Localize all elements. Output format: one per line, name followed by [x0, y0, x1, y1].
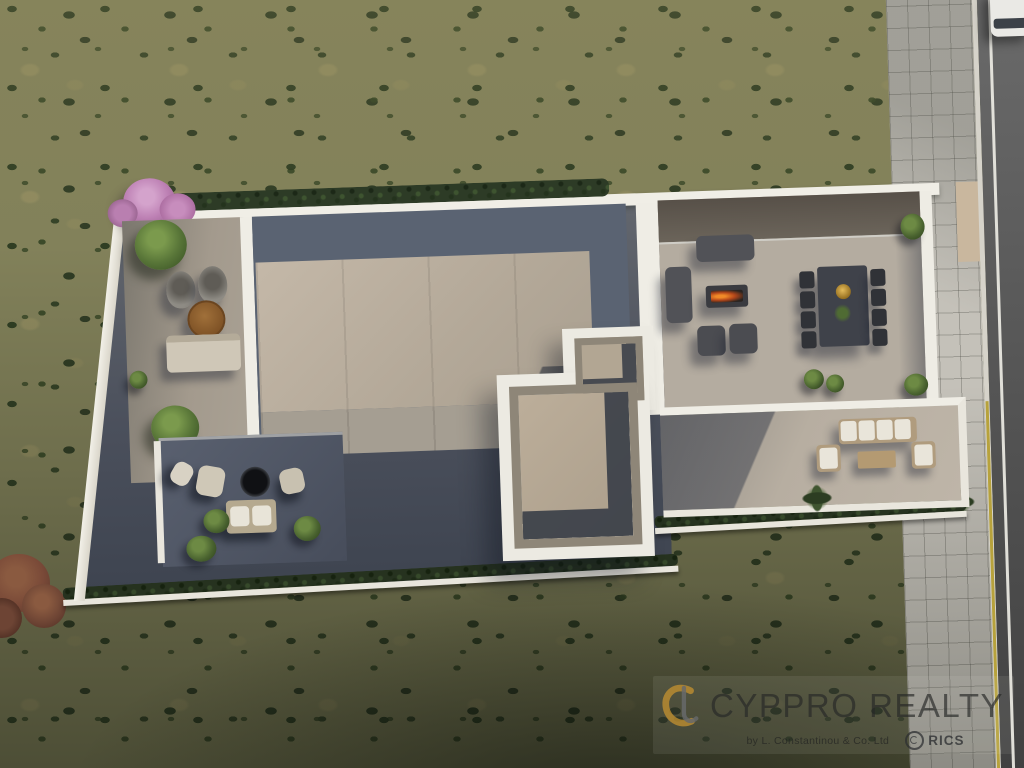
sofa-cushion — [858, 420, 875, 441]
watermark: CYPPRO REALTY by L. Constantinou & Co. L… — [653, 676, 1014, 754]
armchair-cushion — [914, 444, 933, 466]
dining-chair — [800, 291, 816, 309]
sun-lounger-1 — [195, 464, 227, 498]
lounge-cushion-chair — [167, 459, 196, 489]
watermark-brand-row: CYPPRO REALTY — [661, 682, 1004, 730]
stair-core-main-roof-well — [509, 382, 643, 548]
wooden-coffee-table — [857, 450, 896, 468]
watermark-byline-row: by L. Constantinou & Co. Ltd RICS — [661, 731, 1004, 750]
parked-car — [990, 0, 1024, 37]
dining-chair — [871, 309, 887, 327]
cyppro-monogram-icon — [661, 682, 703, 730]
dining-chair — [871, 289, 887, 307]
beige-outdoor-sofa — [166, 333, 241, 373]
sun-lounger-2 — [278, 466, 307, 495]
daybed-pillow — [252, 505, 272, 526]
palm-shrub — [794, 477, 839, 519]
dining-table — [817, 265, 870, 347]
dining-chair — [801, 311, 817, 329]
lounge-armchair-2 — [729, 323, 758, 354]
white-cushion-sofa — [838, 417, 917, 445]
terrace-shrub — [293, 516, 321, 542]
right-terrace — [658, 191, 927, 408]
sofa-cushion — [894, 419, 911, 440]
hanging-chair-2 — [198, 266, 228, 304]
lounge-sofa-long — [696, 234, 755, 262]
courtyard-shrub — [129, 370, 148, 389]
lounge-armchair-1 — [697, 325, 726, 356]
fire-flames — [711, 290, 743, 303]
villa-plot — [55, 151, 956, 626]
rics-label: RICS — [928, 733, 964, 748]
lower-right-terrace — [660, 397, 970, 518]
dining-chair — [799, 271, 815, 289]
table-plant — [834, 304, 851, 323]
brass-bowl-centrepiece — [836, 284, 852, 300]
brand-name: CYPPRO REALTY — [710, 687, 1004, 725]
courtyard-tree-upper — [134, 219, 188, 271]
white-armchair-1 — [816, 444, 841, 472]
lounge-sofa-side — [665, 266, 693, 323]
dining-chair — [870, 269, 886, 287]
terrace-shrub — [826, 374, 845, 393]
terrace-shrub — [186, 535, 217, 562]
daybed — [226, 499, 277, 534]
lower-left-terrace — [159, 432, 347, 567]
fire-pit-table — [706, 284, 749, 307]
hanging-chair-1 — [166, 271, 196, 309]
car-windshield — [994, 18, 1024, 29]
sofa-cushion — [840, 421, 857, 442]
armchair-cushion — [819, 447, 838, 469]
byline-text: by L. Constantinou & Co. Ltd — [747, 735, 890, 747]
rics-icon — [905, 731, 924, 750]
terrace-shrub — [804, 369, 825, 390]
aerial-render: CYPPRO REALTY by L. Constantinou & Co. L… — [0, 0, 1024, 768]
stair-core-structure — [495, 326, 661, 561]
dining-chair — [872, 329, 888, 347]
rics-badge: RICS — [905, 731, 964, 750]
sofa-cushion — [876, 420, 893, 441]
white-armchair-2 — [911, 441, 936, 469]
dining-chair — [801, 331, 817, 349]
daybed-pillow — [230, 506, 250, 527]
round-fire-bowl — [240, 466, 271, 497]
